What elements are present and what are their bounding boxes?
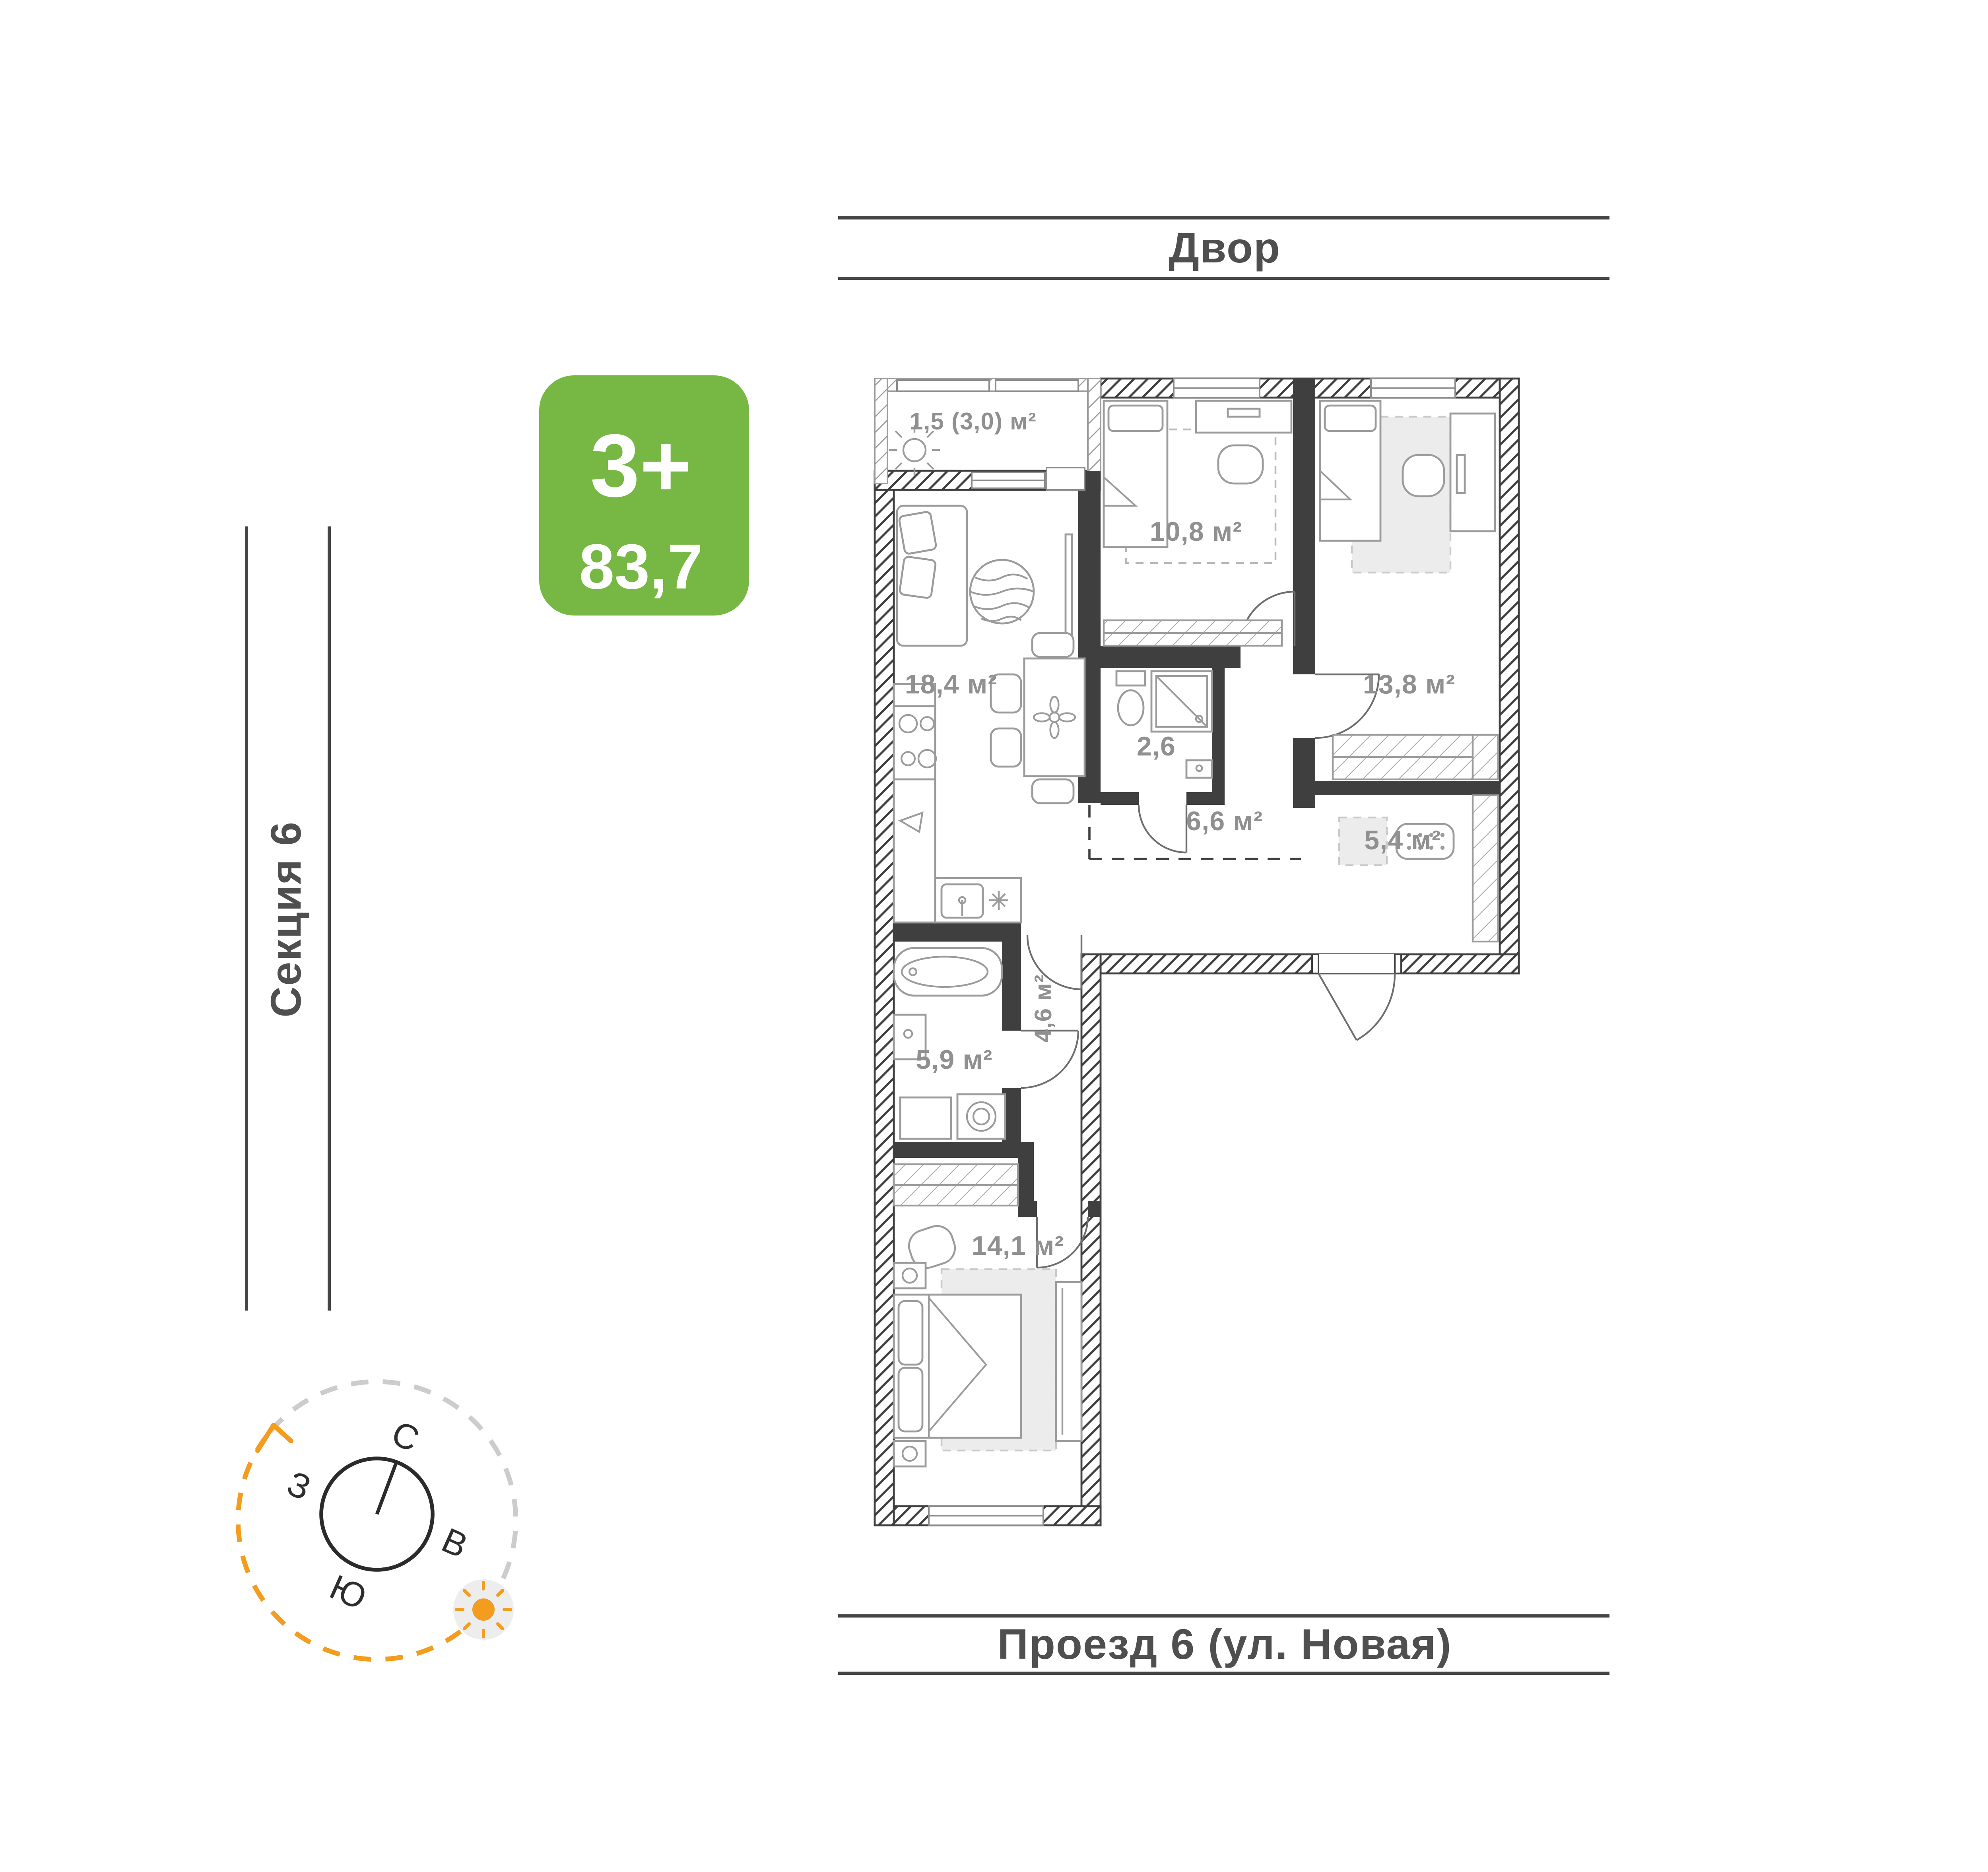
wall-wc-bottom-a [1101,792,1139,805]
monitor-child [1228,409,1260,417]
wall-wc-bottom-b [1186,792,1225,805]
bed-master-pillow-2 [899,1368,922,1431]
nightstand-top [894,1263,926,1288]
balcony-glazing-2 [996,380,1078,391]
bed-child-pillow [1109,406,1163,431]
chair-left-2 [991,728,1021,767]
wall-left [875,471,894,1525]
compass-north: С [386,1413,425,1459]
plant-icon [903,439,926,461]
wall-kitchen-bottom [894,922,1021,942]
floorplan-page: Двор Секция 6 Проезд 8 (ул. Новая) Проез… [0,0,1988,1872]
wall-bedroom-master-top-a [1018,1201,1037,1217]
window-bedroom-child [1174,379,1260,398]
furniture-wc [1116,671,1212,778]
sofa-pillow-2 [899,556,936,598]
floorplan: 1,5 (3,0) м² 18,4 м² 10,8 м² 13,8 м² 2,6… [875,379,1519,1525]
label-hallway: 6,6 м² [1186,806,1263,836]
tv-panel [1066,534,1072,636]
label-corridor: 4,6 м² [1030,974,1056,1043]
nightstand-bottom [894,1441,926,1466]
street-label-left: Секция 6 [262,821,310,1018]
bathroom-cabinet [900,1097,951,1139]
street-band-bottom: Проезд 6 (ул. Новая) [838,1616,1609,1673]
wardrobe-right-upper [1473,735,1498,779]
badge-rooms-type: 3+ [590,416,691,515]
compass: С З В Ю [238,1382,516,1660]
street-label-bottom: Проезд 6 (ул. Новая) [997,1620,1452,1668]
entry-door [1312,954,1401,1040]
wall-bedroom-child-bottom-a [1078,646,1241,668]
street-band-top: Двор [838,218,1609,278]
wardrobe-master [1056,1282,1081,1441]
bed-large-pillow [1325,406,1376,431]
label-balcony: 1,5 (3,0) м² [910,408,1037,435]
furniture-bathroom [894,948,1005,1139]
apartment-badge: 3+ 83,7 [539,375,749,616]
monitor-large [1457,455,1465,493]
floorplan-canvas: Двор Секция 6 Проезд 8 (ул. Новая) Проез… [0,0,1988,1872]
window-bedroom-large [1371,379,1455,398]
toilet-bowl [1118,690,1143,725]
wall-band-bottom [1101,954,1519,973]
wc-sink [1186,760,1212,778]
label-dressing: 5,4 м² [1364,825,1441,855]
compass-east: В [436,1520,474,1565]
entry-door-opening [1318,954,1395,973]
entry-door-leaf [1318,973,1357,1040]
wall-wc-right [1212,668,1225,805]
washing-machine [957,1094,1005,1139]
chair-bottom [1032,779,1074,803]
toilet-tank [1116,671,1145,685]
wall-right [1500,379,1519,973]
furniture-bedroom-large [1320,401,1498,779]
wardrobe-right-lower [1473,795,1498,942]
street-label-top: Двор [1169,223,1281,272]
wall-bathroom-bottom [894,1142,1034,1158]
balcony-wall-left [875,379,887,484]
furniture-kitchen [894,684,1021,922]
chair-top [1032,633,1074,657]
label-bathroom: 5,9 м² [916,1045,993,1075]
label-bedroom-child: 10,8 м² [1150,517,1242,547]
wall-bedrooms-divider [1293,379,1315,646]
wall-dressing-divider [1315,781,1500,795]
label-living-kitchen: 18,4 м² [905,669,998,699]
entry-door-jamb-left [1312,954,1318,973]
badge-total-area: 83,7 [579,531,703,602]
label-bedroom-master: 14,1 м² [972,1231,1064,1261]
label-bedroom-large: 13,8 м² [1363,669,1456,699]
desk-chair-child [1218,445,1263,484]
street-band-left: Секция 6 [247,526,329,1311]
furniture-bedroom-master [894,1164,1081,1466]
wall-bedroom-large-left-a [1293,646,1315,674]
label-wc: 2,6 [1137,731,1176,761]
entry-door-jamb-right [1395,954,1401,973]
window-bedroom-master [929,1506,1043,1525]
wall-bedroom-master-top-b [1088,1201,1101,1217]
bed-master-pillow-1 [899,1301,922,1365]
door-wc [1139,805,1186,852]
wall-leg-right [1081,954,1101,1525]
desk-chair-large [1403,455,1444,496]
sofa-pillow-1 [899,511,936,554]
wall-bedroom-large-left-b [1293,738,1315,808]
balcony-glazing-1 [897,380,989,391]
wall-bathroom-right-a [1002,942,1021,1031]
compass-west: З [282,1463,317,1508]
entry-door-arc [1357,973,1395,1040]
furniture-dressing [1339,795,1498,942]
compass-south: Ю [324,1567,372,1618]
